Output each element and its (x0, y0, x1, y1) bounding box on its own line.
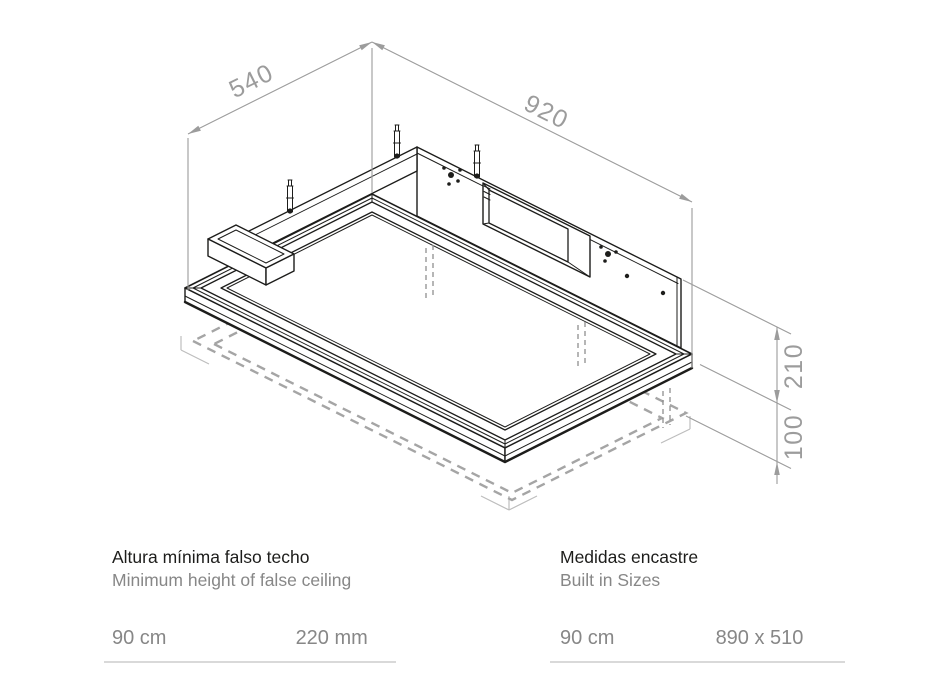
screw-hole (448, 172, 454, 178)
spec-value-hood-size: 90 cm (112, 627, 290, 650)
spec-values: 90 cm 890 x 510 (560, 627, 803, 650)
spec-value-hood-size: 90 cm (560, 627, 710, 650)
screw-hole (603, 259, 607, 263)
arrowhead (774, 327, 780, 340)
screw-hole (614, 250, 618, 254)
spec-block-false-ceiling-height: Altura mínima falso techo Minimum height… (112, 546, 396, 592)
screw-hole (625, 274, 629, 278)
spec-title-en: Built in Sizes (560, 569, 850, 592)
divider-rule-right (550, 661, 845, 663)
slab-corner-left (181, 336, 209, 364)
spec-block-built-in-sizes: Medidas encastre Built in Sizes 90 cm 89… (560, 546, 850, 592)
spec-title-en: Minimum height of false ceiling (112, 569, 396, 592)
dimension-line-540 (188, 42, 372, 134)
screw-hole (458, 168, 462, 172)
arrowhead (679, 194, 692, 202)
screw-hole (599, 245, 603, 249)
arrowhead (359, 42, 372, 50)
screw-hole (605, 251, 611, 257)
extension-slant-top (683, 280, 791, 334)
screw-post (394, 125, 401, 159)
spec-sheet-page: 540 920 210 100 Altura mínima falso tech… (0, 0, 950, 700)
dimension-label-100: 100 (780, 414, 808, 460)
arrowhead (774, 462, 780, 475)
arrowhead (188, 126, 201, 134)
screw-hole (456, 179, 460, 183)
arrowhead (774, 390, 780, 403)
dimension-label-540: 540 (225, 58, 279, 104)
spec-title-es: Altura mínima falso techo (112, 546, 396, 569)
screw-hole (442, 166, 446, 170)
arrowhead (372, 42, 385, 50)
screw-hole (661, 291, 665, 295)
spec-values: 90 cm 220 mm (112, 627, 368, 650)
screw-post (474, 145, 481, 179)
spec-title-es: Medidas encastre (560, 546, 850, 569)
dimension-label-210: 210 (780, 343, 808, 389)
spec-value-min-height: 220 mm (296, 627, 368, 649)
extension-slant-bottom (686, 416, 791, 469)
screw-post (287, 180, 294, 214)
divider-rule-left (104, 661, 396, 663)
screw-hole (447, 182, 451, 186)
dimension-label-920: 920 (520, 89, 574, 135)
slab-corner-right (661, 416, 690, 443)
spec-value-cutout-size: 890 x 510 (716, 627, 804, 649)
isometric-technical-drawing: 540 920 210 100 (0, 0, 950, 520)
